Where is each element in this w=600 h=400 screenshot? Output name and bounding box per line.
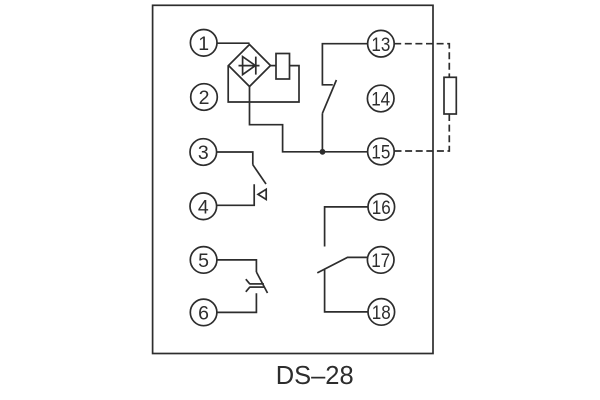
svg-text:2: 2 [199, 87, 210, 109]
svg-text:15: 15 [371, 142, 390, 164]
svg-text:5: 5 [198, 250, 209, 272]
svg-text:13: 13 [371, 34, 390, 56]
svg-text:17: 17 [371, 250, 390, 272]
svg-text:6: 6 [198, 303, 209, 325]
svg-text:DS–28: DS–28 [276, 362, 354, 390]
svg-text:3: 3 [198, 142, 209, 164]
svg-text:18: 18 [372, 302, 391, 324]
svg-text:1: 1 [198, 33, 209, 55]
svg-text:4: 4 [198, 196, 209, 218]
svg-text:14: 14 [371, 89, 390, 111]
svg-text:16: 16 [372, 197, 391, 219]
